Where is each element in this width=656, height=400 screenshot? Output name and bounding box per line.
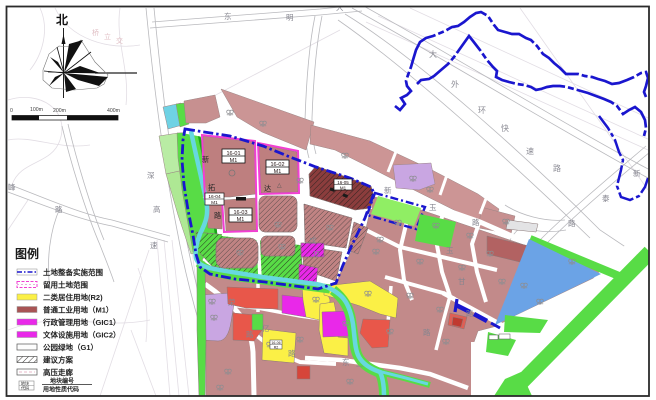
svg-text:桥: 桥	[92, 28, 99, 37]
svg-text:东: 东	[342, 357, 350, 367]
svg-text:达: 达	[264, 184, 271, 193]
svg-text:新: 新	[202, 155, 209, 164]
svg-text:建议方案: 建议方案	[42, 355, 73, 365]
svg-text:M1: M1	[230, 158, 238, 164]
svg-text:16-04: 16-04	[208, 194, 221, 200]
svg-text:外: 外	[451, 79, 459, 89]
svg-text:二类居住用地(R2): 二类居住用地(R2)	[43, 292, 103, 302]
svg-text:普通工业用地（M1）: 普通工业用地（M1）	[43, 305, 113, 315]
svg-text:400m: 400m	[107, 108, 120, 114]
svg-text:高压走廊: 高压走廊	[43, 367, 73, 377]
svg-text:大: 大	[429, 49, 437, 59]
svg-text:R2: R2	[274, 346, 279, 350]
svg-text:200m: 200m	[53, 108, 66, 114]
svg-text:路: 路	[472, 217, 480, 227]
svg-text:土地整备实施范围: 土地整备实施范围	[43, 267, 103, 277]
svg-text:路: 路	[55, 204, 63, 214]
svg-text:M1: M1	[237, 217, 245, 223]
svg-text:明: 明	[286, 13, 294, 22]
svg-text:成: 成	[309, 235, 317, 245]
svg-text:M1: M1	[340, 186, 347, 191]
svg-text:北: 北	[56, 12, 68, 27]
svg-text:深: 深	[147, 171, 155, 180]
svg-text:东: 东	[224, 11, 232, 21]
svg-text:荣: 荣	[228, 297, 236, 307]
svg-text:玉: 玉	[446, 246, 454, 255]
svg-text:M1: M1	[211, 200, 218, 206]
svg-text:高: 高	[153, 204, 161, 214]
svg-text:速: 速	[150, 241, 158, 250]
svg-text:立: 立	[104, 32, 111, 41]
svg-text:拓: 拓	[208, 183, 215, 192]
svg-text:亿: 亿	[262, 323, 270, 333]
svg-text:文体设施用地（GIC2）: 文体设施用地（GIC2）	[43, 330, 121, 340]
svg-text:新: 新	[633, 168, 641, 178]
svg-text:16-06: 16-06	[271, 341, 280, 345]
svg-text:留用土地范围: 留用土地范围	[43, 280, 88, 290]
svg-text:地块编号: 地块编号	[50, 377, 74, 385]
svg-text:环: 环	[478, 106, 486, 115]
svg-text:100m: 100m	[30, 107, 43, 113]
svg-text:泰: 泰	[602, 193, 610, 203]
svg-text:环: 环	[313, 250, 321, 259]
svg-text:16-01: 16-01	[226, 151, 240, 157]
svg-text:交: 交	[116, 36, 123, 45]
svg-text:路: 路	[214, 211, 221, 220]
svg-text:新: 新	[384, 185, 392, 195]
svg-text:一: 一	[356, 362, 364, 371]
svg-text:路: 路	[246, 329, 254, 339]
svg-text:甘: 甘	[458, 276, 466, 286]
svg-text:快: 快	[501, 123, 509, 133]
svg-text:路: 路	[466, 308, 474, 318]
svg-text:行政管理用地（GIC1）: 行政管理用地（GIC1）	[42, 317, 121, 327]
svg-text:路: 路	[423, 327, 431, 337]
svg-text:16-03: 16-03	[233, 210, 247, 216]
svg-text:玉: 玉	[429, 203, 437, 212]
svg-text:峰: 峰	[8, 182, 16, 192]
svg-text:图例: 图例	[15, 246, 39, 261]
svg-text:代码: 代码	[21, 385, 29, 391]
svg-text:16-02: 16-02	[270, 162, 284, 168]
svg-text:16-05: 16-05	[337, 180, 349, 185]
svg-text:M1: M1	[274, 169, 282, 175]
svg-text:路: 路	[553, 163, 561, 173]
svg-text:△: △	[277, 183, 282, 189]
svg-text:公园绿地（G1）: 公园绿地（G1）	[43, 342, 98, 352]
svg-text:用地性质代码: 用地性质代码	[42, 386, 79, 394]
svg-text:速: 速	[526, 147, 534, 156]
svg-text:0: 0	[10, 108, 13, 114]
svg-text:路: 路	[288, 348, 296, 358]
svg-text:路: 路	[568, 218, 576, 228]
